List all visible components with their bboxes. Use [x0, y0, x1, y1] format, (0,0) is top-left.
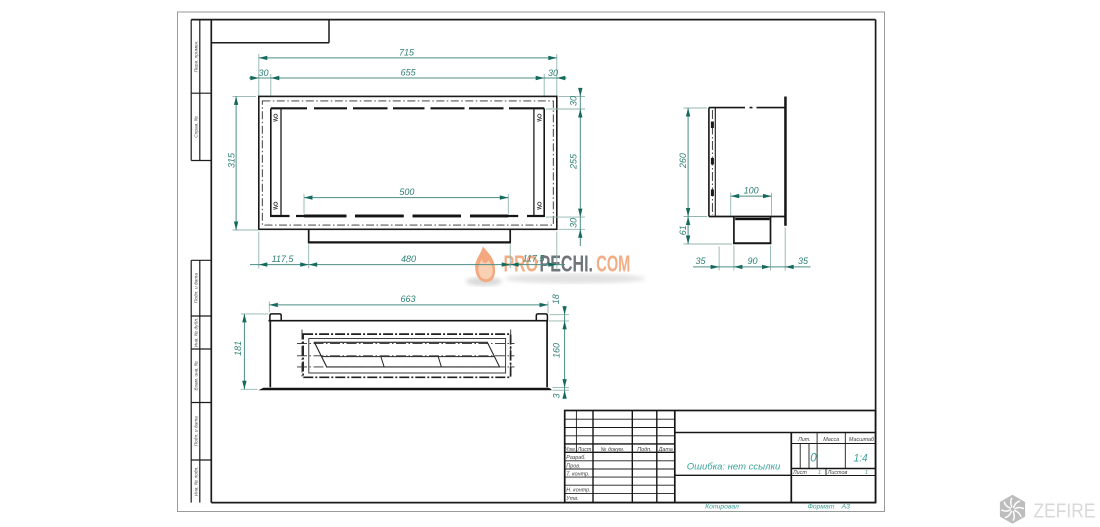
- svg-text:61: 61: [678, 225, 688, 235]
- svg-text:30: 30: [258, 68, 268, 78]
- svg-text:117,5: 117,5: [523, 253, 546, 263]
- svg-text:Изм.: Изм.: [565, 447, 577, 453]
- svg-text:Взам. инв. №: Взам. инв. №: [194, 361, 200, 391]
- svg-text:35: 35: [798, 256, 809, 266]
- svg-text:181: 181: [233, 341, 243, 356]
- svg-text:Ошибка: нет ссылки: Ошибка: нет ссылки: [687, 462, 781, 473]
- svg-text:Инв. № подл.: Инв. № подл.: [194, 466, 200, 496]
- svg-text:Перв. примен.: Перв. примен.: [194, 40, 200, 72]
- svg-text:500: 500: [399, 187, 414, 197]
- svg-text:1:4: 1:4: [854, 453, 868, 465]
- svg-text:30: 30: [548, 68, 558, 78]
- svg-text:Подп. и дата: Подп. и дата: [194, 273, 200, 303]
- svg-text:655: 655: [401, 68, 417, 78]
- svg-text:Лист: Лист: [577, 447, 592, 453]
- svg-text:160: 160: [552, 343, 562, 358]
- svg-text:18: 18: [551, 294, 561, 304]
- svg-text:Н. контр.: Н. контр.: [566, 488, 590, 494]
- svg-text:30: 30: [569, 218, 579, 228]
- svg-text:Утв.: Утв.: [565, 496, 578, 502]
- svg-text:Подп. и дата: Подп. и дата: [194, 416, 200, 446]
- svg-text:255: 255: [569, 153, 579, 170]
- svg-text:Листов: Листов: [827, 470, 848, 476]
- svg-text:Т. контр.: Т. контр.: [566, 471, 589, 477]
- svg-text:Копировал: Копировал: [705, 503, 739, 510]
- svg-text:100: 100: [744, 185, 759, 195]
- svg-text:Подп.: Подп.: [637, 447, 651, 453]
- svg-text:315: 315: [227, 152, 237, 168]
- svg-text:260: 260: [678, 153, 688, 169]
- svg-text:Дата: Дата: [658, 447, 673, 453]
- svg-text:А3: А3: [841, 503, 851, 510]
- svg-text:3: 3: [552, 393, 562, 398]
- svg-text:1: 1: [818, 470, 821, 476]
- svg-text:Разраб.: Разраб.: [566, 455, 586, 461]
- svg-text:715: 715: [399, 47, 415, 57]
- svg-text:90: 90: [747, 256, 757, 266]
- svg-text:35: 35: [695, 256, 706, 266]
- svg-text:Лист: Лист: [792, 470, 807, 476]
- svg-text:117,5: 117,5: [272, 254, 295, 264]
- svg-text:Формат: Формат: [808, 503, 835, 510]
- svg-text:Инв. № дубл.: Инв. № дубл.: [194, 318, 200, 348]
- svg-text:480: 480: [401, 254, 416, 264]
- svg-text:0: 0: [810, 453, 817, 465]
- svg-text:ZEFIRE: ZEFIRE: [1034, 501, 1096, 523]
- svg-text:30: 30: [569, 96, 579, 106]
- svg-text:Пров.: Пров.: [566, 463, 580, 469]
- svg-text:Масштаб: Масштаб: [849, 437, 875, 443]
- svg-text:Лит.: Лит.: [797, 437, 811, 443]
- svg-text:1: 1: [865, 470, 868, 476]
- svg-text:№ докум.: № докум.: [601, 447, 625, 453]
- svg-text:Справ. №: Справ. №: [194, 116, 200, 138]
- svg-text:Масса: Масса: [823, 437, 839, 443]
- svg-text:PECHI.: PECHI.: [540, 251, 594, 277]
- svg-text:663: 663: [400, 294, 415, 304]
- svg-text:COM: COM: [596, 251, 630, 277]
